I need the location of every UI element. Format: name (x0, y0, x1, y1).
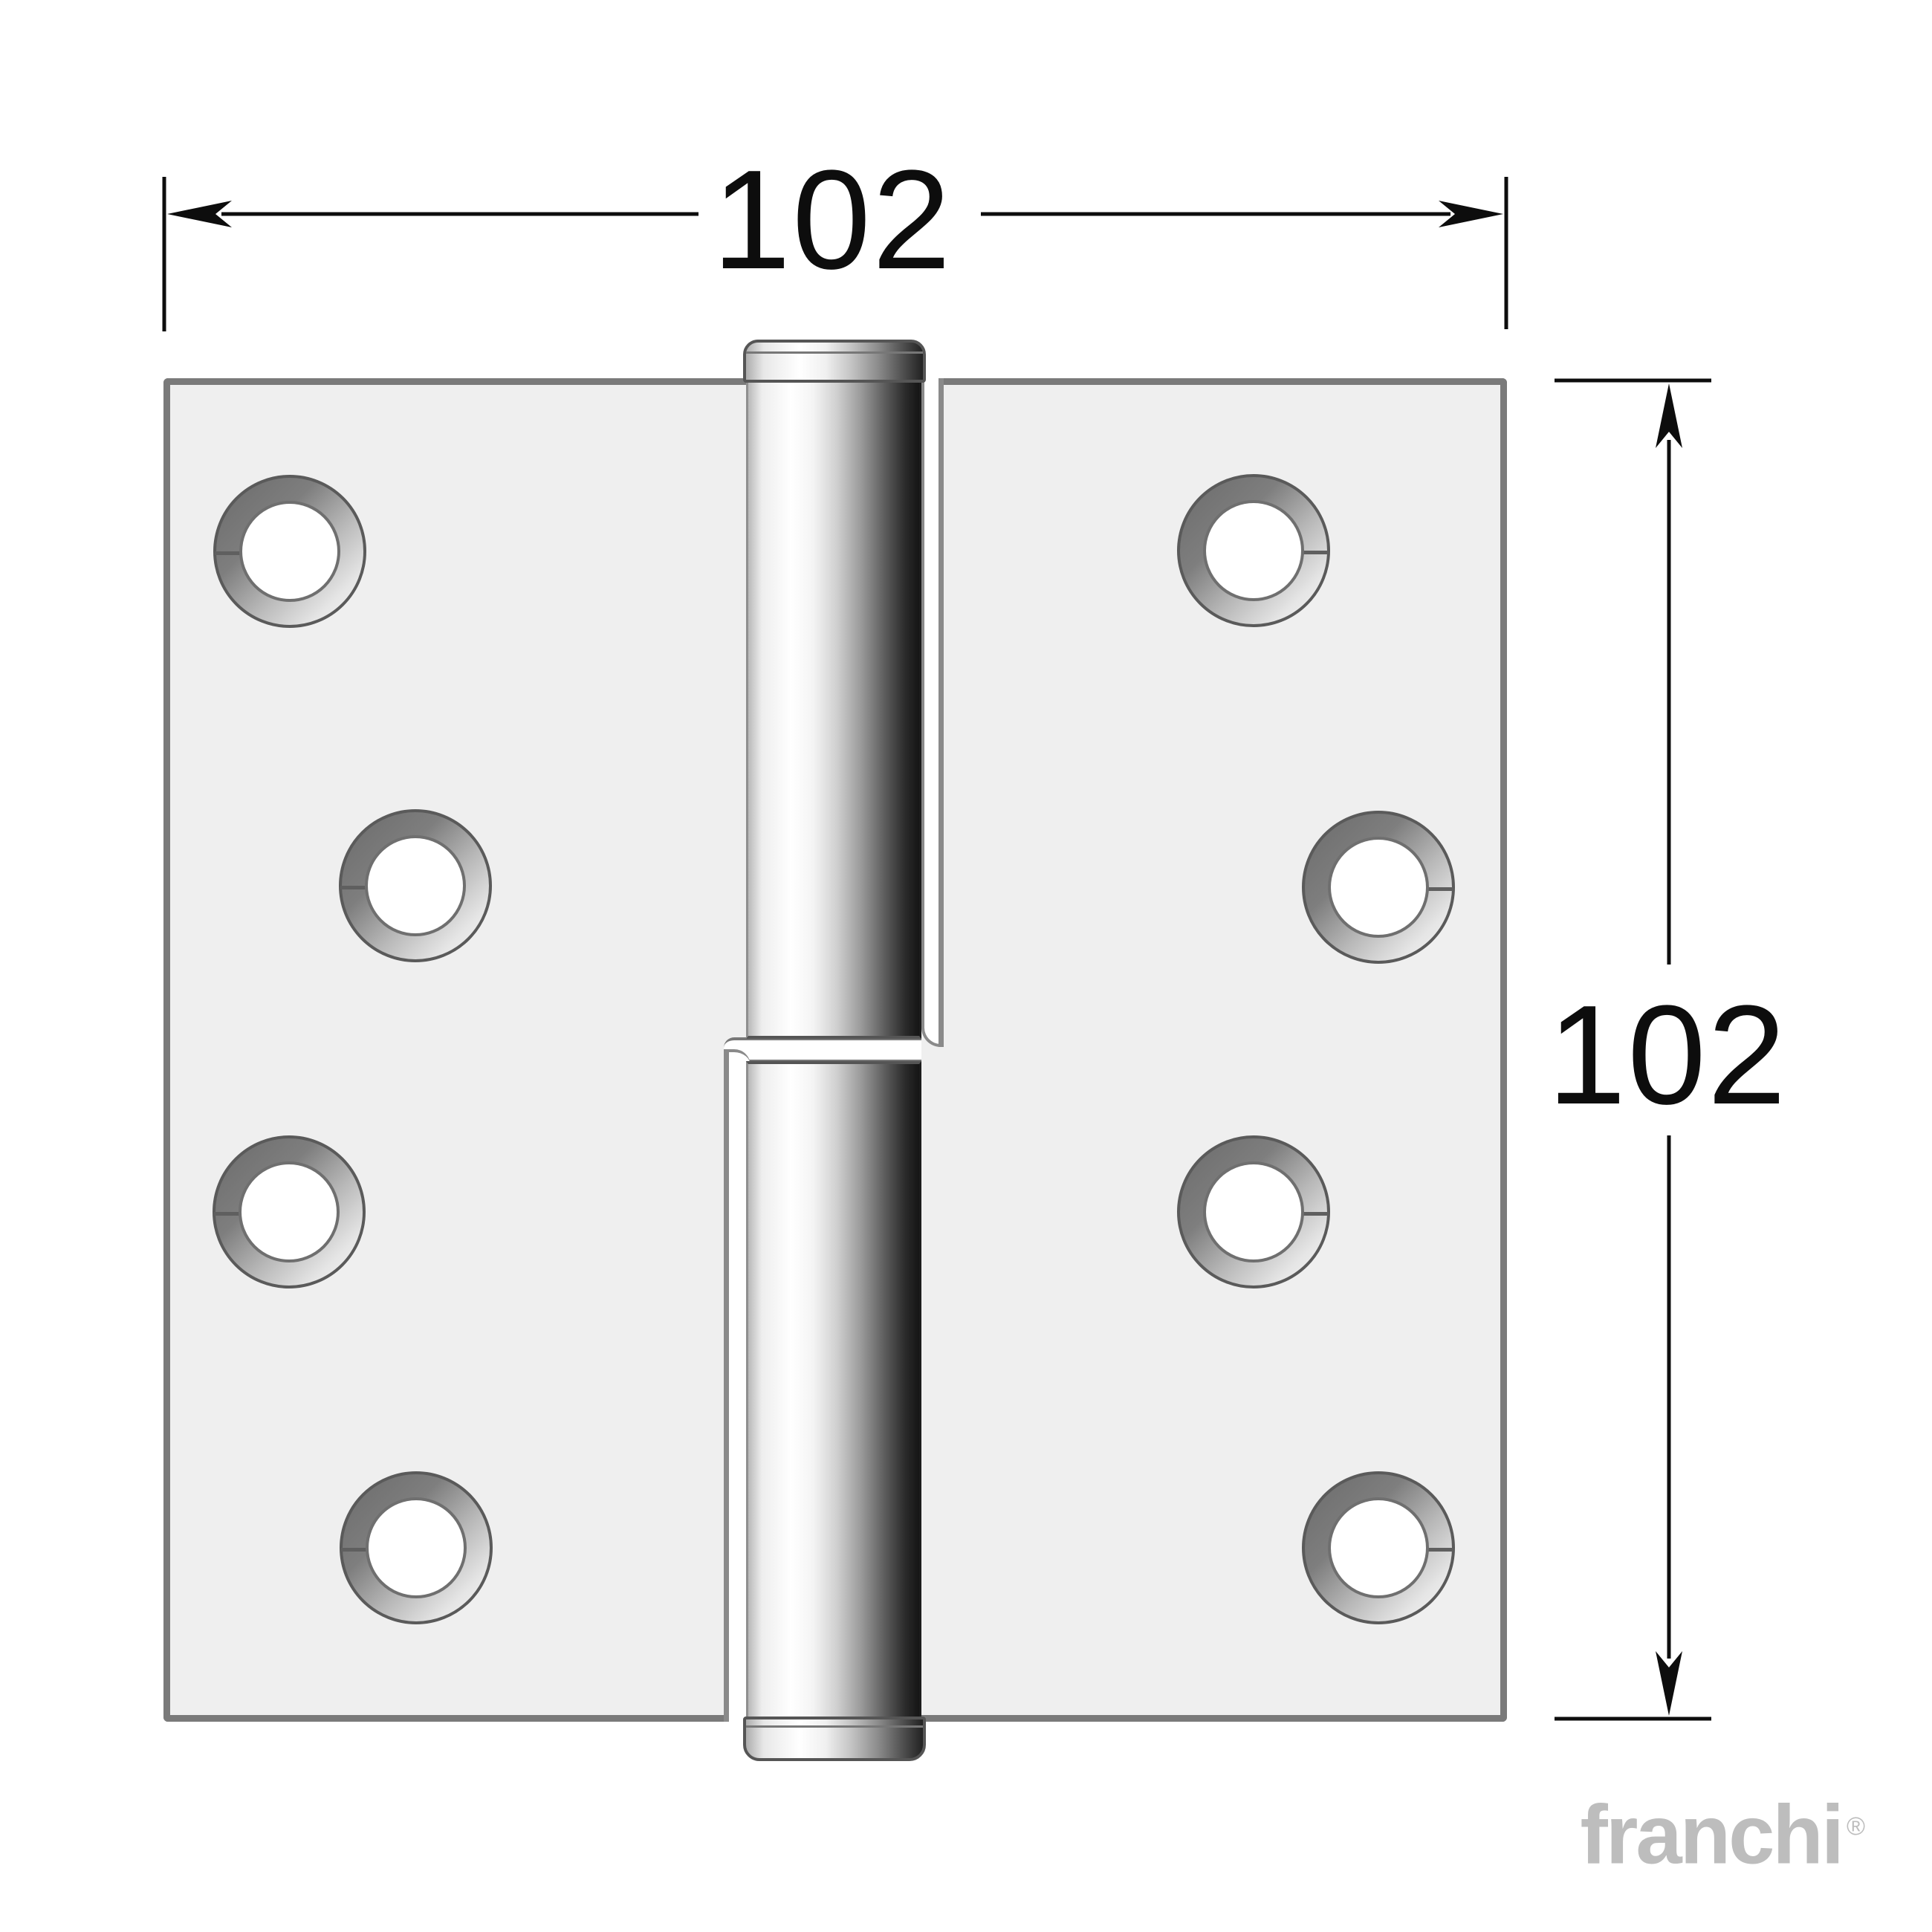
hinge-technical-drawing: 102 102 franchi® (0, 0, 1932, 1932)
height-dimension-value: 102 (1482, 973, 1853, 1137)
height-dim-top-arrow (1656, 383, 1682, 448)
width-dimension-value: 102 (646, 138, 1018, 302)
franchi-logo-text: franchi (1581, 1788, 1842, 1881)
franchi-logo: franchi® (1479, 1789, 1865, 1872)
registered-mark-icon: ® (1847, 1812, 1865, 1841)
height-dim-bottom-arrow (1656, 1651, 1682, 1716)
